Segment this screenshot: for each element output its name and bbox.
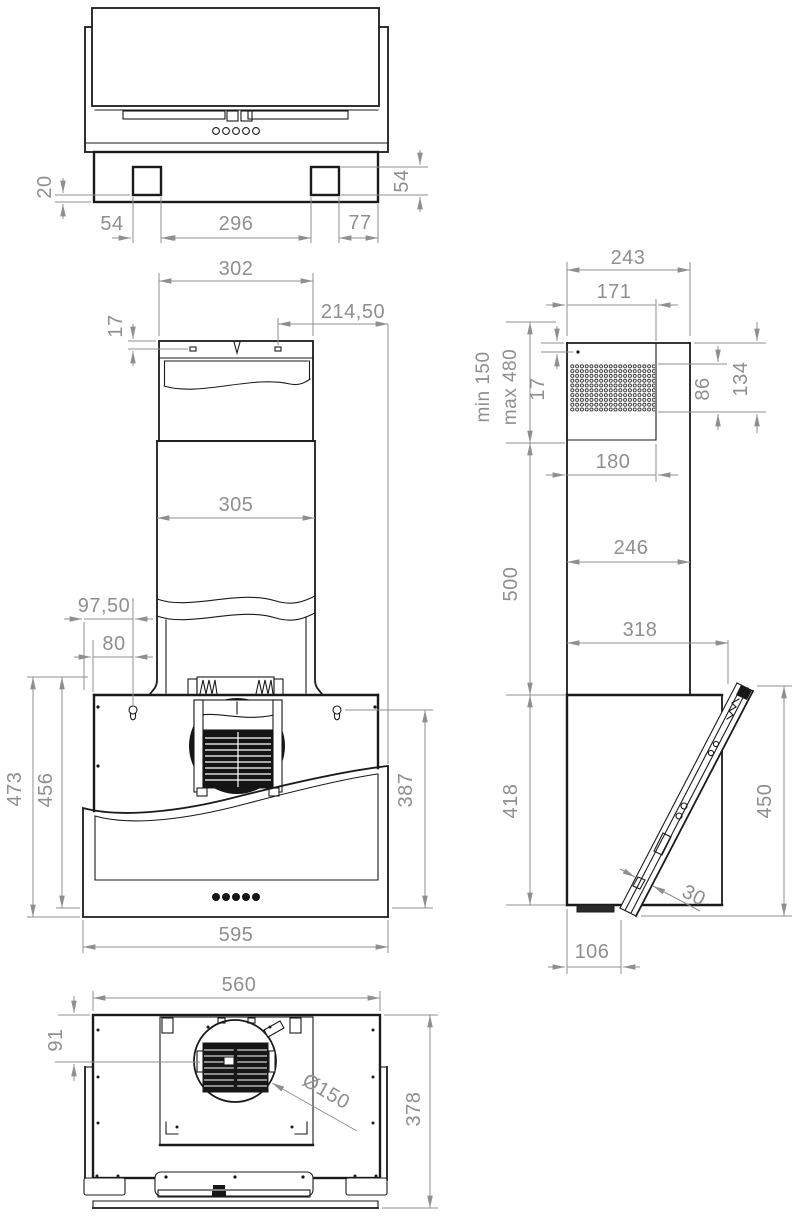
top-view: 20 54 296 77 54 [34,8,428,243]
dim-side-243: 243 [611,247,646,269]
glass-panel-side [620,683,753,916]
dim-bottom-378: 378 [403,1092,425,1127]
hood-dimension-drawing: 20 54 296 77 54 [0,0,797,1220]
blower-assembly [189,698,285,796]
dim-front-595: 595 [219,924,254,946]
dim-front-214-50: 214,50 [321,301,385,323]
dim-side-max480: max 480 [500,349,521,425]
dim-side-171: 171 [597,281,632,303]
dim-bottom-diameter-150: Ø150 [298,1070,353,1115]
keyhole-mount-right [333,706,341,720]
dim-side-180: 180 [596,451,631,473]
dim-side-246: 246 [614,537,649,559]
dim-front-80: 80 [102,633,125,655]
dim-front-97-50: 97,50 [78,595,131,617]
dim-side-134: 134 [730,362,752,397]
dim-front-473: 473 [4,772,26,807]
dim-front-387: 387 [395,773,417,808]
dim-top-54-left: 54 [100,213,123,235]
dim-side-418: 418 [500,784,522,819]
dim-front-302: 302 [219,258,254,280]
dim-side-106: 106 [575,941,610,963]
dim-side-min150: min 150 [473,351,494,422]
dim-front-305: 305 [219,494,254,516]
bottom-view: 560 91 Ø150 378 [45,974,438,1208]
dim-bottom-91: 91 [45,1028,67,1051]
dim-side-86: 86 [692,377,714,400]
keyhole-mount-left [129,706,137,720]
duct-opening [194,1018,284,1102]
dim-side-500: 500 [500,567,522,602]
side-view-dimensions: 243 171 min 150 max 480 17 86 134 [473,247,792,974]
dim-side-450: 450 [754,784,776,819]
dim-side-318: 318 [623,619,658,641]
dim-bottom-560: 560 [222,974,257,996]
top-view-control-buttons [213,128,260,135]
dim-side-17: 17 [527,377,549,400]
duct-cutout-left [133,167,161,195]
vent-grille [570,364,655,412]
dim-top-296: 296 [219,213,254,235]
side-view: 243 171 min 150 max 480 17 86 134 [473,247,792,974]
dim-top-54-right: 54 [391,169,413,192]
dim-front-456: 456 [35,773,57,808]
dim-side-30: 30 [678,881,709,911]
front-control-buttons [212,893,260,901]
technical-drawing-page: 20 54 296 77 54 [0,0,797,1220]
dim-top-77: 77 [348,212,371,234]
dim-top-20: 20 [34,175,56,198]
dim-front-17: 17 [105,314,127,337]
front-view: 302 214,50 17 305 97,50 80 [4,258,433,953]
duct-cutout-right [311,167,339,195]
front-view-dimensions: 302 214,50 17 305 97,50 80 [4,258,433,953]
